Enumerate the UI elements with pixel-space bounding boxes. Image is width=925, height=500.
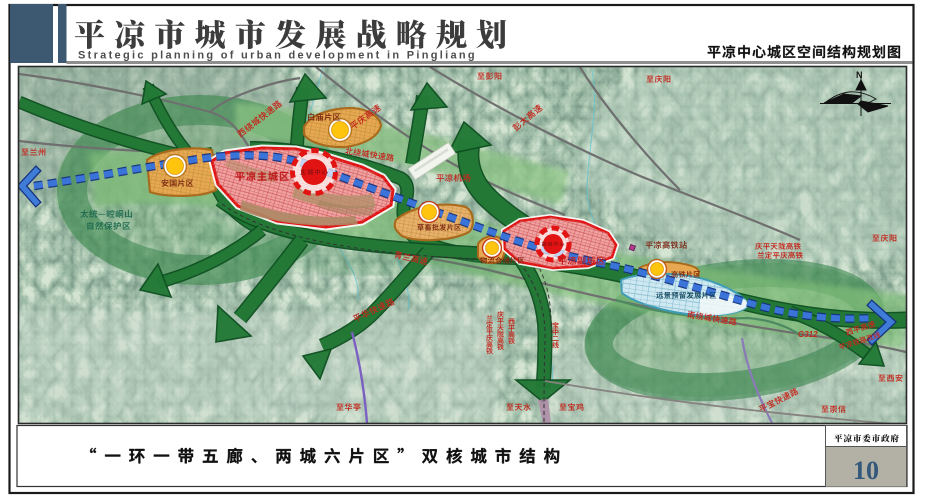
svg-text:Strategic planning of urban de: Strategic planning of urban development … — [78, 50, 477, 62]
svg-text:N: N — [856, 70, 863, 80]
svg-text:10: 10 — [853, 456, 879, 485]
svg-text:G312: G312 — [798, 330, 818, 339]
